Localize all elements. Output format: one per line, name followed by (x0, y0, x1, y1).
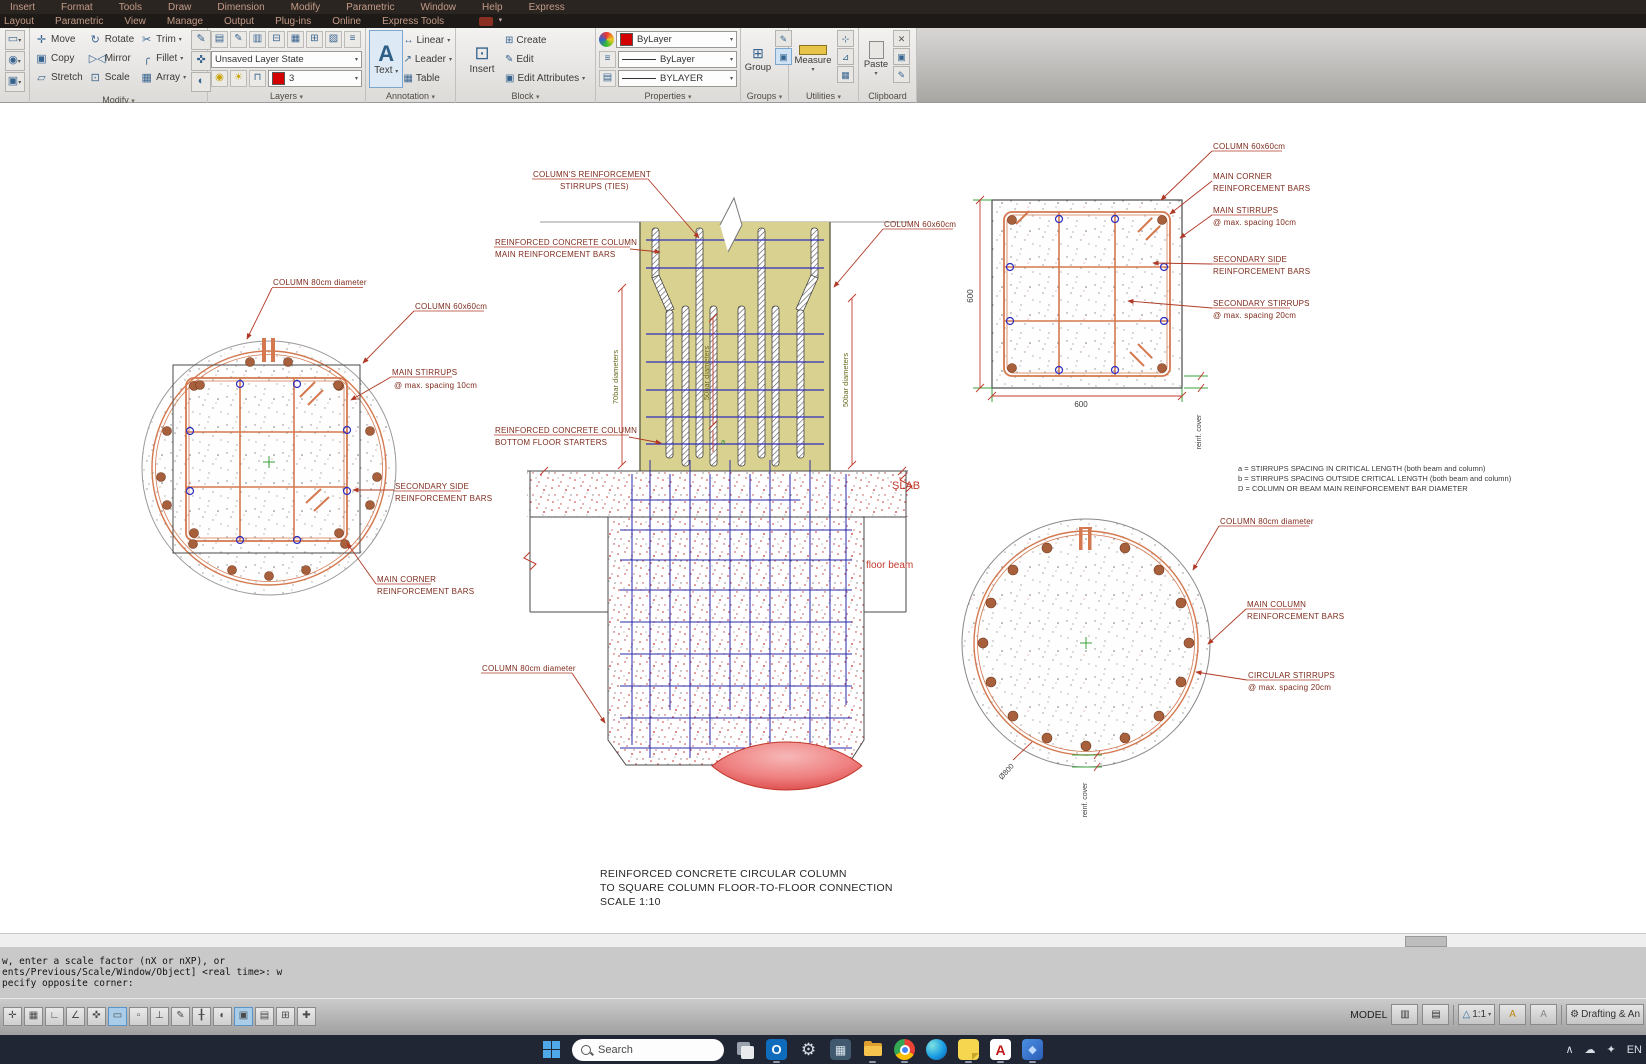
transparency-icon[interactable]: ◐ (213, 1007, 232, 1026)
lock-icon[interactable]: ⊓ (249, 70, 266, 87)
match-properties-icon[interactable]: ✎ (893, 66, 910, 83)
layer-color-swatch (272, 72, 285, 85)
autoscale-annotation-icon[interactable]: A (1530, 1004, 1557, 1025)
linear-dim-icon: ↔ (403, 35, 413, 46)
measure-icon (799, 45, 827, 55)
table-icon: ▦ (403, 73, 412, 84)
insert-block-button[interactable]: ⊡ Insert (459, 30, 505, 88)
polar-tracking-icon[interactable]: ∠ (66, 1007, 85, 1026)
left-circular-section: COLUMN 80cm diameter COLUMN 60x60cm MAIN… (142, 278, 492, 596)
table-button[interactable]: ▦Table (403, 69, 452, 87)
sq-label-sec-stirrups-2: @ max. spacing 20cm (1213, 311, 1296, 320)
utilities-panel-label[interactable]: Utilities ▾ (789, 90, 858, 103)
search-icon (581, 1045, 591, 1055)
drawing-title: REINFORCED CONCRETE CIRCULAR COLUMN TO S… (600, 868, 893, 908)
label-secondary-side: SECONDARY SIDE (395, 482, 469, 491)
menu-draw[interactable]: Draw (168, 2, 191, 13)
sticky-notes-icon (958, 1039, 979, 1060)
dynamic-ucs-icon[interactable]: ⊥ (150, 1007, 169, 1026)
label-ties-2: STIRRUPS (TIES) (560, 182, 629, 191)
block-panel: ⊡ Insert ⊞Create ✎Edit ▣Edit Attributes▾… (456, 28, 596, 103)
paste-button[interactable]: Paste ▾ (862, 30, 890, 88)
trim-button[interactable]: ✂Trim▾ (138, 30, 188, 49)
text-icon: A (378, 43, 394, 65)
tray-chevron-icon[interactable]: ∧ (1565, 1043, 1573, 1056)
layer-freeze-icon[interactable]: ▦ (287, 31, 304, 48)
view-tool-icon[interactable]: ◉▾ (5, 51, 25, 71)
settings-button[interactable]: ⚙ (797, 1038, 820, 1061)
paste-icon (869, 41, 884, 59)
layer-lock-icon[interactable]: ▧ (325, 31, 342, 48)
layer-state-dropdown[interactable]: Unsaved Layer State▾ (211, 51, 362, 68)
dynamic-input-icon[interactable]: ✎ (171, 1007, 190, 1026)
title-line-1: REINFORCED CONCRETE CIRCULAR COLUMN (600, 868, 847, 880)
status-bar-right: MODEL ▥ ▤ △ 1:1 ▾ A A ⚙ Drafting & An (1350, 1004, 1646, 1025)
layer-off-icon[interactable]: ⊞ (306, 31, 323, 48)
layer-match-icon[interactable]: ✎ (230, 31, 247, 48)
menu-bar-2: Layout Parametric View Manage Output Plu… (0, 14, 1646, 28)
label-starters-1: REINFORCED CONCRETE COLUMN (495, 426, 637, 435)
bulb-icon[interactable]: ◉ (211, 70, 228, 87)
text-button[interactable]: A Text ▾ (369, 30, 403, 88)
move-icon: ✛ (35, 33, 48, 46)
annotation-visibility-icon[interactable]: A (1499, 1004, 1526, 1025)
sun-icon[interactable]: ☀ (230, 70, 247, 87)
menu-express[interactable]: Express (529, 2, 565, 13)
quick-select-icon[interactable]: ⊿ (837, 48, 854, 65)
autoscale-icon[interactable]: ⊞ (276, 1007, 295, 1026)
scrollbar-thumb[interactable] (1405, 936, 1447, 947)
menu-window[interactable]: Window (420, 2, 456, 13)
menu-parametric[interactable]: Parametric (346, 2, 394, 13)
menu-view[interactable]: View (124, 16, 146, 27)
ortho-mode-icon[interactable]: ∟ (45, 1007, 64, 1026)
circular-section: reinf. cover Ø800 COLUMN 80cm diameter M… (962, 517, 1344, 817)
object-snap-icon[interactable]: ▭ (108, 1007, 127, 1026)
fillet-icon: ╭ (140, 52, 153, 65)
gear-icon: ⚙ (1570, 1009, 1579, 1020)
menu-online[interactable]: Online (332, 16, 361, 27)
sq-label-corner-1: MAIN CORNER (1213, 172, 1272, 181)
square-section: 600 600 reinf. cover COLUMN 60x60cm MAIN… (966, 142, 1310, 449)
clipboard-panel-label: Clipboard (859, 90, 916, 103)
groups-panel: ⊞ Group ✎ ▣ Groups ▾ (741, 28, 789, 103)
label-column-60: COLUMN 60x60cm (415, 302, 487, 311)
rectangle-tool-icon[interactable]: ▭▾ (5, 30, 25, 50)
grid-display-icon[interactable]: ▦ (24, 1007, 43, 1026)
calculator-icon: ▦ (830, 1039, 851, 1060)
layer-properties-icon[interactable]: ▤ (211, 31, 228, 48)
properties-panel-label[interactable]: Properties ▾ (596, 90, 740, 103)
label-main-stirrups: MAIN STIRRUPS (392, 368, 457, 377)
annotation-panel-label[interactable]: Annotation ▾ (366, 90, 455, 103)
menu-tools[interactable]: Tools (119, 2, 142, 13)
mirror-button[interactable]: ▷◁Mirror (87, 49, 136, 68)
layers-panel: ▤ ✎ ▥ ⊟ ▦ ⊞ ▧ ≡ Unsaved Layer State▾ ◉ ☀ (208, 28, 366, 103)
menu-express-tools[interactable]: Express Tools (382, 16, 444, 27)
dropbox-icon[interactable]: ✦ (1607, 1043, 1616, 1056)
notes: a = STIRRUPS SPACING IN CRITICAL LENGTH … (1238, 464, 1512, 493)
circ-label-main-2: REINFORCEMENT BARS (1247, 612, 1344, 621)
menu-help[interactable]: Help (482, 2, 503, 13)
3d-object-snap-icon[interactable]: ▫ (129, 1007, 148, 1026)
label-column-80-elev: COLUMN 80cm diameter (482, 664, 576, 673)
measure-button[interactable]: Measure ▾ (792, 30, 834, 88)
language-indicator[interactable]: EN (1627, 1044, 1642, 1056)
menu-plugins[interactable]: Plug-ins (275, 16, 311, 27)
workspace-toggle-icon[interactable]: ✚ (297, 1007, 316, 1026)
edit-block-icon: ✎ (505, 54, 513, 65)
sq-label-column: COLUMN 60x60cm (1213, 142, 1285, 151)
square-reinf-cover: reinf. cover (1196, 414, 1203, 449)
label-main-corner-2: REINFORCEMENT BARS (377, 587, 474, 596)
array-icon: ▦ (140, 71, 153, 84)
rotate-button[interactable]: ↻Rotate (87, 30, 136, 49)
circle-reinf-cover: reinf. cover (1082, 782, 1089, 817)
task-view-icon (734, 1039, 755, 1060)
search-box[interactable]: Search (572, 1039, 724, 1061)
layer-prev-icon[interactable]: ▥ (249, 31, 266, 48)
stretch-icon: ▱ (35, 71, 48, 84)
outlook-button[interactable]: O (765, 1038, 788, 1061)
workspace-switcher[interactable]: ⚙ Drafting & An (1566, 1004, 1644, 1025)
autocad-button[interactable]: A (989, 1038, 1012, 1061)
label-starters-2: BOTTOM FLOOR STARTERS (495, 438, 607, 447)
ribbon-empty-area (917, 28, 1646, 102)
label-main-bars-1: REINFORCED CONCRETE COLUMN (495, 238, 637, 247)
scale-icon: ⊡ (89, 71, 102, 84)
photos-icon: ◆ (1022, 1039, 1043, 1060)
onedrive-cloud-icon[interactable]: ☁ (1585, 1043, 1596, 1056)
modify-panel: ✛Move ▣Copy ▱Stretch ↻Rotate ▷◁Mirror ⊡S… (30, 28, 208, 103)
copy-icon: ▣ (35, 52, 48, 65)
leader-icon: ↗ (403, 54, 411, 65)
menu-dimension[interactable]: Dimension (217, 2, 264, 13)
dim-50bar-center: 50bar diameters (702, 346, 711, 400)
id-point-icon[interactable]: ⊹ (837, 30, 854, 47)
drafting-toggles: ✛ ▦ ∟ ∠ ✜ ▭ ▫ ⊥ ✎ ╂ ◐ ▣ ▤ ⊞ ✚ (3, 1007, 316, 1026)
autocad-icon: A (990, 1039, 1011, 1060)
layer-isolate-icon[interactable]: ⊟ (268, 31, 285, 48)
dim-50bar-right: 50bar diameters (841, 353, 850, 407)
trim-icon: ✂ (140, 33, 153, 46)
edge-button[interactable] (925, 1038, 948, 1061)
circ-label-stirrups-2: @ max. spacing 20cm (1248, 683, 1331, 692)
label-slab: SLAB (892, 480, 920, 492)
drawing-canvas[interactable]: COLUMN 80cm diameter COLUMN 60x60cm MAIN… (0, 103, 1646, 933)
command-line-text: w, enter a scale factor (nX or nXP), or … (2, 956, 282, 989)
search-placeholder: Search (598, 1044, 633, 1056)
layout-icon[interactable]: ▥ (1391, 1004, 1418, 1025)
properties-panel: ByLayer▾ ≡ ByLayer▾ ▤ BYLAYER▾ Propertie… (596, 28, 741, 103)
photos-button[interactable]: ◆ (1021, 1038, 1044, 1061)
color-swatch (620, 33, 633, 46)
start-button[interactable] (540, 1038, 563, 1061)
group-button[interactable]: ⊞ Group (744, 30, 772, 88)
menu-insert[interactable]: Insert (10, 2, 35, 13)
menu-output[interactable]: Output (224, 16, 254, 27)
menu-layout[interactable]: Layout (4, 16, 34, 27)
layer-walk-icon[interactable]: ≡ (344, 31, 361, 48)
note-b: b = STIRRUPS SPACING OUTSIDE CRITICAL LE… (1238, 474, 1512, 483)
title-line-3: SCALE 1:10 (600, 896, 661, 908)
label-main-corner: MAIN CORNER (377, 575, 436, 584)
object-color-dropdown[interactable]: ByLayer▾ (616, 31, 737, 48)
edge-icon (926, 1039, 947, 1060)
command-line[interactable]: w, enter a scale factor (nX or nXP), or … (0, 947, 1646, 998)
system-tray: ∧ ☁ ✦ EN (1565, 1035, 1642, 1064)
circ-label-diameter: COLUMN 80cm diameter (1220, 517, 1314, 526)
groups-panel-label[interactable]: Groups ▾ (741, 90, 788, 103)
cut-icon[interactable]: ✕ (893, 30, 910, 47)
annotation-panel: A Text ▾ ↔Linear▾ ↗Leader▾ ▦Table Annota… (366, 28, 456, 103)
clipboard-panel: Paste ▾ ✕ ▣ ✎ Clipboard (859, 28, 917, 103)
calculator-button[interactable]: ▦ (829, 1038, 852, 1061)
chrome-icon (894, 1039, 915, 1060)
chrome-button[interactable] (893, 1038, 916, 1061)
status-bar: ✛ ▦ ∟ ∠ ✜ ▭ ▫ ⊥ ✎ ╂ ◐ ▣ ▤ ⊞ ✚ MODEL ▥ ▤ … (0, 998, 1646, 1036)
move-button[interactable]: ✛Move (33, 30, 85, 49)
settings-gear-icon: ⚙ (798, 1039, 819, 1060)
autocad-window: Insert Format Tools Draw Dimension Modif… (0, 0, 1646, 1064)
windows-logo-icon (543, 1041, 561, 1059)
ribbon: ▭▾ ◉▾ ▣▾ ✛Move ▣Copy ▱Stretch ↻Rotate ▷◁… (0, 28, 1646, 103)
create-block-icon: ⊞ (505, 35, 513, 46)
copy-clip-icon[interactable]: ▣ (893, 48, 910, 65)
edit-block-button[interactable]: ✎Edit (505, 50, 585, 68)
dim-diameter-800: Ø800 (997, 762, 1016, 782)
sq-label-sec-stirrups-1: SECONDARY STIRRUPS (1213, 299, 1310, 308)
stretch-button[interactable]: ▱Stretch (33, 68, 85, 87)
array-button[interactable]: ▦Array▾ (138, 68, 188, 87)
label-column-60-elev: COLUMN 60x60cm (884, 220, 956, 229)
label-ties-1: COLUMN'S REINFORCEMENT (533, 170, 651, 179)
lineweight-icon: ≡ (599, 51, 616, 68)
label-main-bars-2: MAIN REINFORCEMENT BARS (495, 250, 615, 259)
sq-label-secondary-2: REINFORCEMENT BARS (1213, 267, 1310, 276)
edit-attributes-button[interactable]: ▣Edit Attributes▾ (505, 69, 585, 87)
block-panel-label[interactable]: Block ▾ (456, 90, 595, 103)
snap-mode-icon[interactable]: ✛ (3, 1007, 22, 1026)
annotation-monitor-icon[interactable]: ▤ (255, 1007, 274, 1026)
note-a: a = STIRRUPS SPACING IN CRITICAL LENGTH … (1238, 464, 1486, 473)
menu-bar: Insert Format Tools Draw Dimension Modif… (0, 0, 1646, 14)
create-block-button[interactable]: ⊞Create (505, 31, 585, 49)
circ-label-stirrups-1: CIRCULAR STIRRUPS (1248, 671, 1335, 680)
sq-label-stirrups-2: @ max. spacing 10cm (1213, 218, 1296, 227)
model-space-button[interactable]: MODEL (1350, 1009, 1387, 1021)
file-explorer-button[interactable] (861, 1038, 884, 1061)
linear-dim-button[interactable]: ↔Linear▾ (403, 31, 452, 49)
fillet-button[interactable]: ╭Fillet▾ (138, 49, 188, 68)
insert-block-icon: ⊡ (474, 43, 489, 64)
isometric-drafting-icon[interactable]: ✜ (87, 1007, 106, 1026)
group-icon: ⊞ (752, 45, 764, 62)
circ-label-main-1: MAIN COLUMN (1247, 600, 1306, 609)
quick-tools-panel: ▭▾ ◉▾ ▣▾ (0, 28, 30, 103)
linetype-sample (622, 59, 656, 60)
menu-parametric2[interactable]: Parametric (55, 16, 103, 27)
layers-panel-label[interactable]: Layers ▾ (208, 90, 365, 103)
lineweight-sample (622, 78, 656, 79)
sticky-notes-button[interactable] (957, 1038, 980, 1061)
selection-cycling-icon[interactable]: ▣ (234, 1007, 253, 1026)
copy-button[interactable]: ▣Copy (33, 49, 85, 68)
sq-label-secondary-1: SECONDARY SIDE (1213, 255, 1287, 264)
note-d: D = COLUMN OR BEAM MAIN REINFORCEMENT BA… (1238, 484, 1468, 493)
edit-attributes-icon: ▣ (505, 73, 514, 84)
drawing-svg: COLUMN 80cm diameter COLUMN 60x60cm MAIN… (0, 103, 1646, 933)
quick-view-icon[interactable]: ▤ (1422, 1004, 1449, 1025)
linetype-icon: ▤ (599, 70, 616, 87)
dim-600-height: 600 (966, 289, 975, 303)
label-column-80cm: COLUMN 80cm diameter (273, 278, 367, 287)
leader-button[interactable]: ↗Leader▾ (403, 50, 452, 68)
annotation-scale-button[interactable]: △ 1:1 ▾ (1458, 1004, 1495, 1025)
menu-format[interactable]: Format (61, 2, 93, 13)
dim-600-width: 600 (1074, 400, 1088, 409)
title-line-2: TO SQUARE COLUMN FLOOR-TO-FLOOR CONNECTI… (600, 882, 893, 894)
color-wheel-icon (599, 32, 614, 47)
label-secondary-side-2: REINFORCEMENT BARS (395, 494, 492, 503)
utilities-panel: Measure ▾ ⊹ ⊿ ▦ Utilities ▾ (789, 28, 859, 103)
task-view-button[interactable] (733, 1038, 756, 1061)
label-floor-beam: floor beam (866, 560, 913, 571)
menu-manage[interactable]: Manage (167, 16, 203, 27)
lineweight-dropdown[interactable]: BYLAYER▾ (618, 70, 737, 87)
rotate-icon: ↻ (89, 33, 102, 46)
dim-70bar: 70bar diameters (611, 350, 620, 404)
mirror-icon: ▷◁ (89, 52, 102, 65)
box-tool-icon[interactable]: ▣▾ (5, 72, 25, 92)
outlook-icon: O (766, 1039, 787, 1060)
menu-modify[interactable]: Modify (291, 2, 320, 13)
layer-dropdown[interactable]: 3▾ (268, 70, 362, 87)
lineweight-display-icon[interactable]: ╂ (192, 1007, 211, 1026)
linetype-dropdown[interactable]: ByLayer▾ (618, 51, 737, 68)
label-main-stirrups-spacing: @ max. spacing 10cm (394, 381, 477, 390)
scale-button[interactable]: ⊡Scale (87, 68, 136, 87)
windows-taskbar: Search O ⚙ ▦ A ◆ ∧ ☁ ✦ EN (0, 1035, 1646, 1064)
folder-icon (862, 1039, 883, 1060)
workspace-switch-icon[interactable] (479, 17, 493, 26)
quick-calc-icon[interactable]: ▦ (837, 66, 854, 83)
center-elevation: 70bar diameters 50bar diameters a 50bar … (481, 170, 956, 790)
sq-label-corner-2: REINFORCEMENT BARS (1213, 184, 1310, 193)
sq-label-stirrups-1: MAIN STIRRUPS (1213, 206, 1278, 215)
